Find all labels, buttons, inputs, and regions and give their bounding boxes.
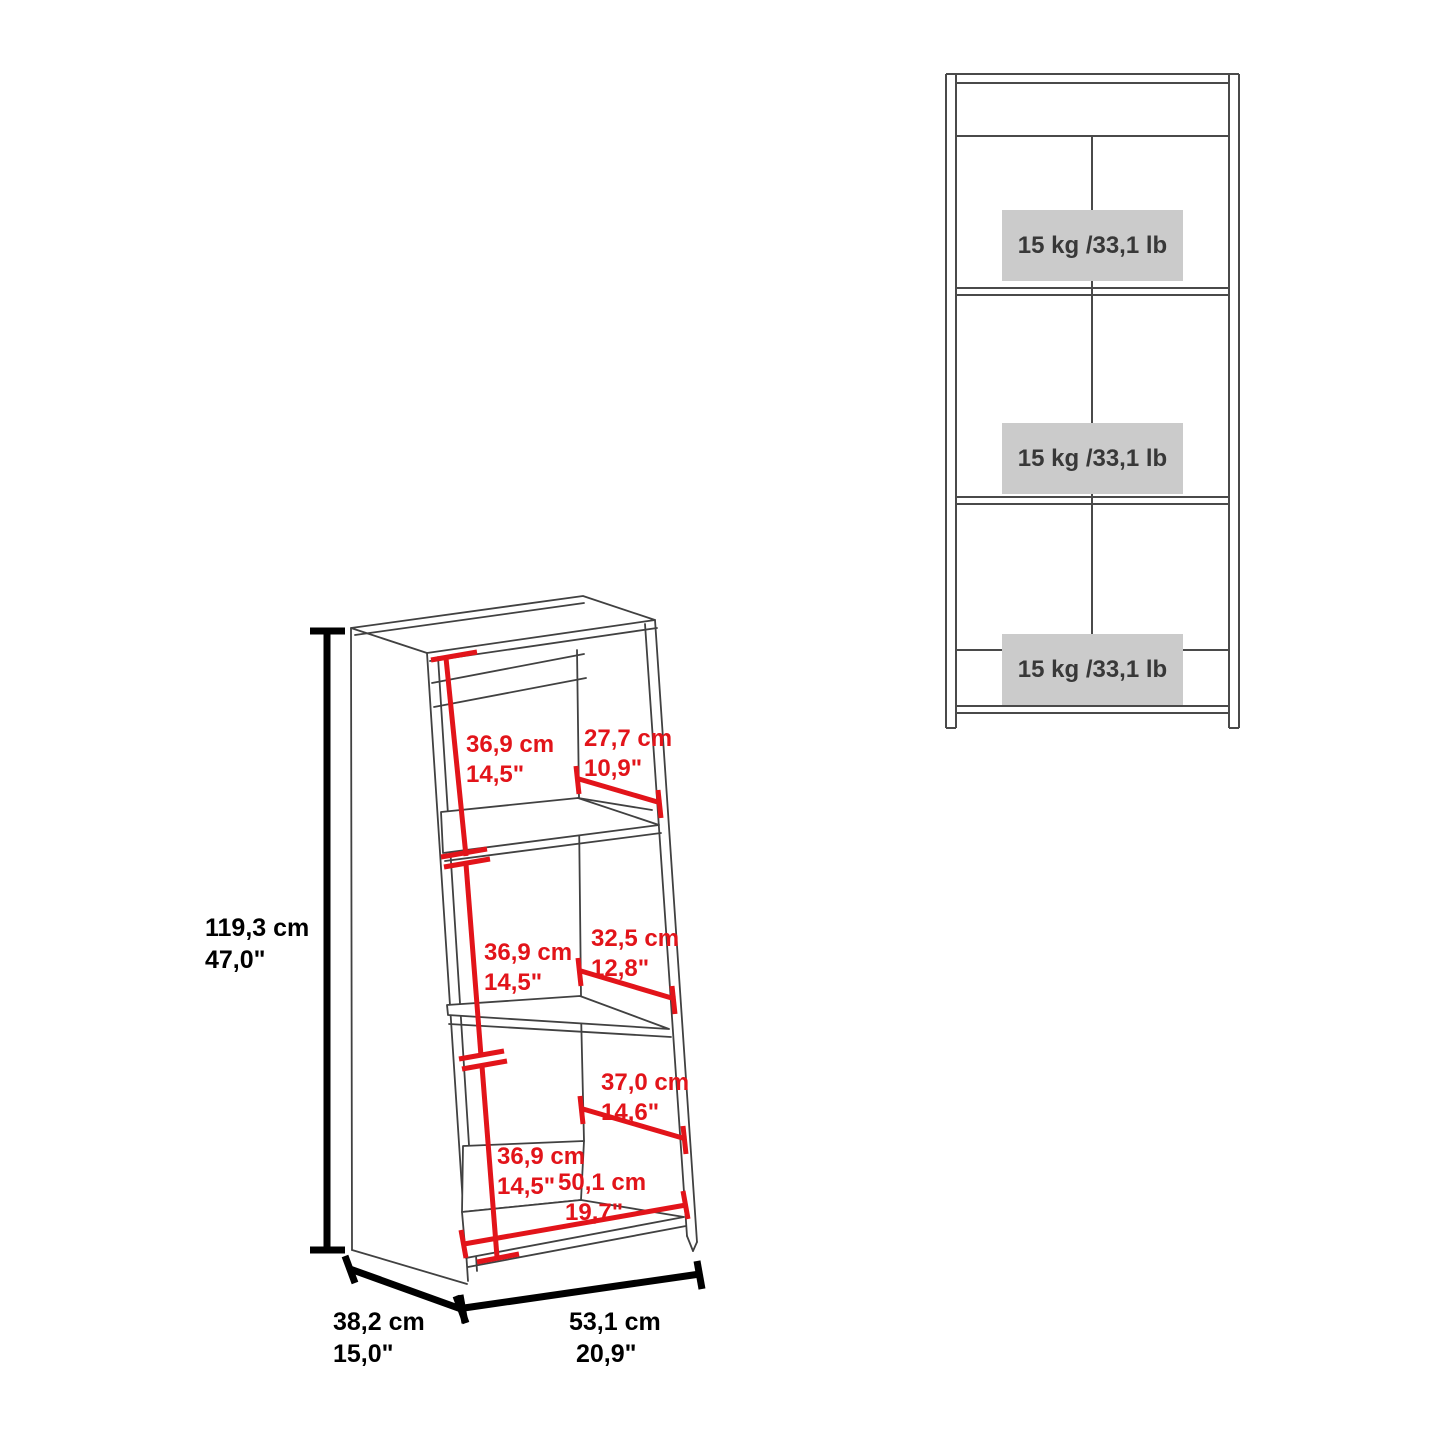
dim-shelf1-depth: 27,7 cm 10,9" xyxy=(584,724,672,784)
dim-interior-width-inch: 19,7" xyxy=(558,1198,646,1228)
dim-shelf2-interior-height-inch: 14,5" xyxy=(484,968,572,998)
diagram-page: 36,9 cm 14,5" 27,7 cm 10,9" 36,9 cm 14,5… xyxy=(0,0,1445,1445)
dim-shelf2-depth-cm: 32,5 cm xyxy=(591,924,679,954)
dim-shelf1-depth-inch: 10,9" xyxy=(584,754,672,784)
capacity-label-shelf3: 15 kg /33,1 lb xyxy=(1002,634,1183,705)
dim-shelf2-interior-height: 36,9 cm 14,5" xyxy=(484,938,572,998)
dim-overall-height-inch: 47,0" xyxy=(205,944,309,976)
dim-shelf1-interior-height: 36,9 cm 14,5" xyxy=(466,730,554,790)
dim-shelf2-depth-inch: 12,8" xyxy=(591,954,679,984)
dim-interior-width: 50,1 cm 19,7" xyxy=(558,1168,646,1228)
dim-overall-depth-cm: 38,2 cm xyxy=(333,1306,425,1338)
dim-shelf3-depth: 37,0 cm 14,6" xyxy=(601,1068,689,1128)
dim-overall-depth: 38,2 cm 15,0" xyxy=(333,1306,425,1370)
capacity-label-shelf2: 15 kg /33,1 lb xyxy=(1002,423,1183,494)
dim-overall-height-cm: 119,3 cm xyxy=(205,912,309,944)
dim-overall-width-inch: 20,9" xyxy=(569,1338,661,1370)
dim-shelf1-interior-height-inch: 14,5" xyxy=(466,760,554,790)
dim-overall-width: 53,1 cm 20,9" xyxy=(569,1306,661,1370)
dim-overall-depth-inch: 15,0" xyxy=(333,1338,425,1370)
dim-shelf3-depth-cm: 37,0 cm xyxy=(601,1068,689,1098)
dim-shelf2-depth: 32,5 cm 12,8" xyxy=(591,924,679,984)
capacity-label-shelf2-text: 15 kg /33,1 lb xyxy=(1018,445,1167,473)
dim-overall-height: 119,3 cm 47,0" xyxy=(205,912,309,976)
dim-interior-width-cm: 50,1 cm xyxy=(558,1168,646,1198)
dim-shelf1-interior-height-cm: 36,9 cm xyxy=(466,730,554,760)
dim-shelf3-depth-inch: 14,6" xyxy=(601,1098,689,1128)
bookshelf-front-view-drawing xyxy=(946,74,1239,728)
dim-shelf1-depth-cm: 27,7 cm xyxy=(584,724,672,754)
capacity-label-shelf1-text: 15 kg /33,1 lb xyxy=(1018,232,1167,260)
dim-shelf2-interior-height-cm: 36,9 cm xyxy=(484,938,572,968)
dim-overall-width-cm: 53,1 cm xyxy=(569,1306,661,1338)
capacity-label-shelf1: 15 kg /33,1 lb xyxy=(1002,210,1183,281)
capacity-label-shelf3-text: 15 kg /33,1 lb xyxy=(1018,656,1167,684)
diagram-linework xyxy=(0,0,1445,1445)
